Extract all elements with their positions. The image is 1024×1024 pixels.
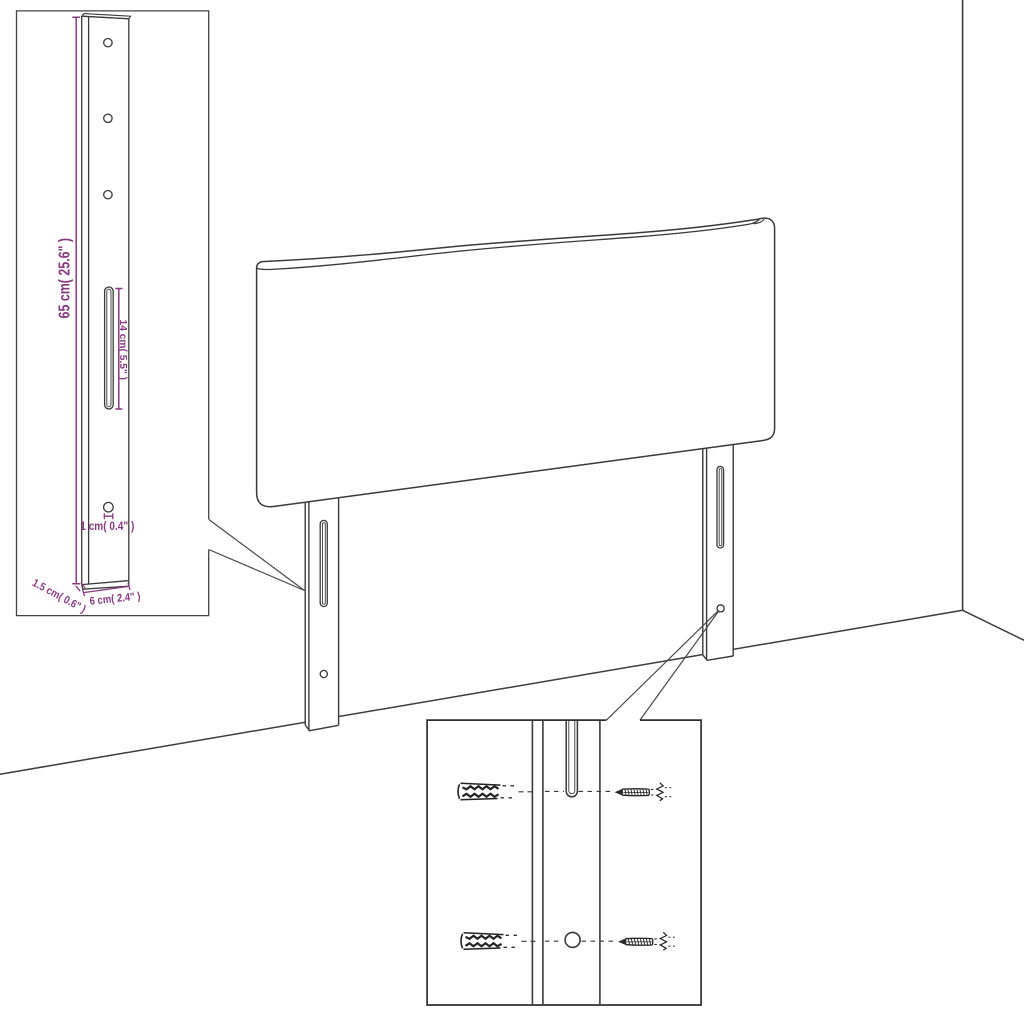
svg-text:1 cm( 0.4" ): 1 cm( 0.4" ) <box>80 519 134 533</box>
svg-text:65 cm( 25.6" ): 65 cm( 25.6" ) <box>57 238 74 319</box>
svg-text:14 cm( 5.5" ): 14 cm( 5.5" ) <box>117 320 128 381</box>
